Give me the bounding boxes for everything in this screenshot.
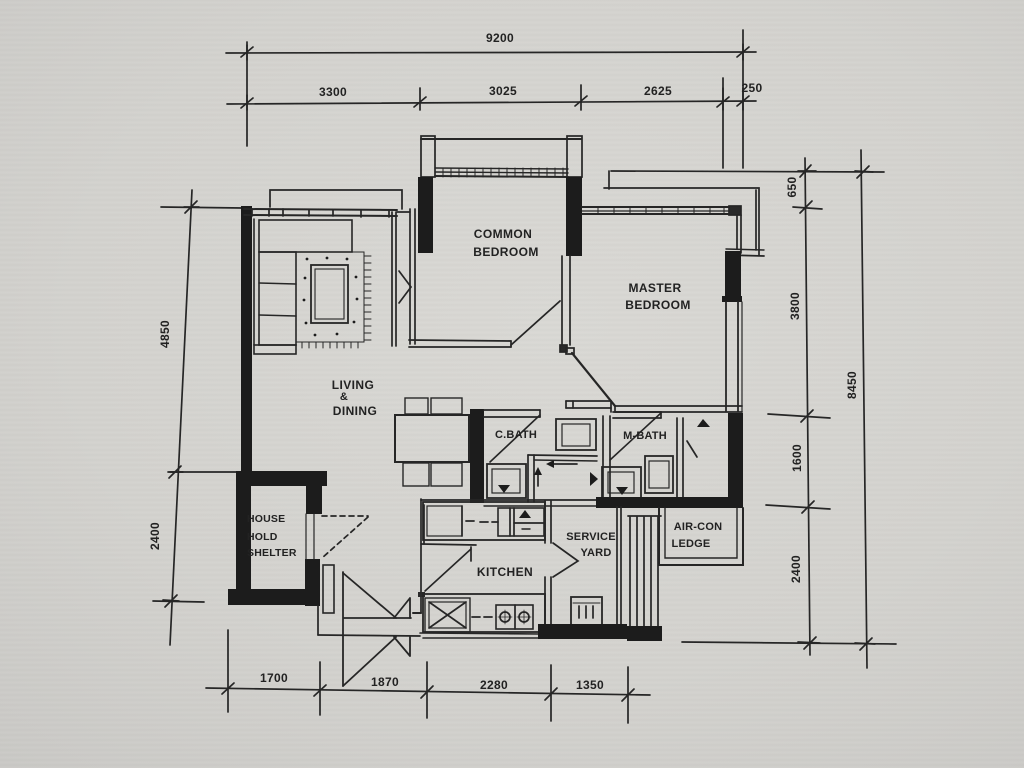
svg-text:3300: 3300 [319,85,347,99]
svg-text:8450: 8450 [845,371,859,399]
svg-text:DINING: DINING [333,404,377,418]
svg-text:&: & [340,391,348,403]
svg-text:COMMON: COMMON [474,227,532,241]
svg-text:MASTER: MASTER [628,281,681,295]
svg-text:2400: 2400 [148,522,162,550]
svg-text:BEDROOM: BEDROOM [473,245,538,259]
svg-text:M-BATH: M-BATH [623,430,667,442]
svg-text:9200: 9200 [486,31,514,45]
svg-text:1870: 1870 [371,675,399,689]
svg-text:YARD: YARD [581,547,612,559]
svg-text:1700: 1700 [260,671,288,685]
svg-text:2280: 2280 [480,678,508,692]
svg-text:1350: 1350 [576,678,604,692]
svg-text:LIVING: LIVING [332,378,374,392]
svg-text:BEDROOM: BEDROOM [625,298,690,312]
svg-text:250: 250 [742,81,763,95]
svg-text:3800: 3800 [788,292,802,320]
svg-text:SHELTER: SHELTER [247,547,297,559]
svg-text:1600: 1600 [790,444,804,472]
svg-text:2625: 2625 [644,84,672,98]
svg-text:AIR-CON: AIR-CON [674,521,722,533]
svg-text:HOLD: HOLD [247,531,278,543]
svg-text:4850: 4850 [158,320,172,348]
svg-text:HOUSE: HOUSE [247,513,285,525]
svg-text:650: 650 [785,177,799,198]
svg-text:C.BATH: C.BATH [495,429,537,441]
svg-text:LEDGE: LEDGE [672,538,711,550]
svg-text:KITCHEN: KITCHEN [477,565,533,579]
svg-text:SERVICE: SERVICE [566,531,616,543]
svg-text:3025: 3025 [489,84,517,98]
svg-text:2400: 2400 [789,555,803,583]
